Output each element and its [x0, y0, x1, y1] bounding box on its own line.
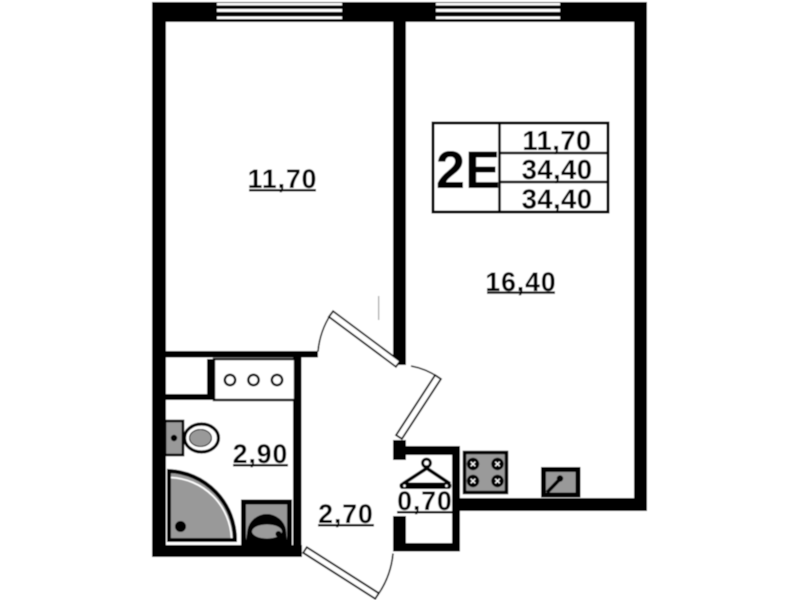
svg-text:11,70: 11,70: [522, 125, 591, 156]
svg-text:34,40: 34,40: [522, 154, 593, 185]
svg-text:2E: 2E: [436, 141, 500, 200]
svg-text:34,40: 34,40: [522, 184, 593, 215]
